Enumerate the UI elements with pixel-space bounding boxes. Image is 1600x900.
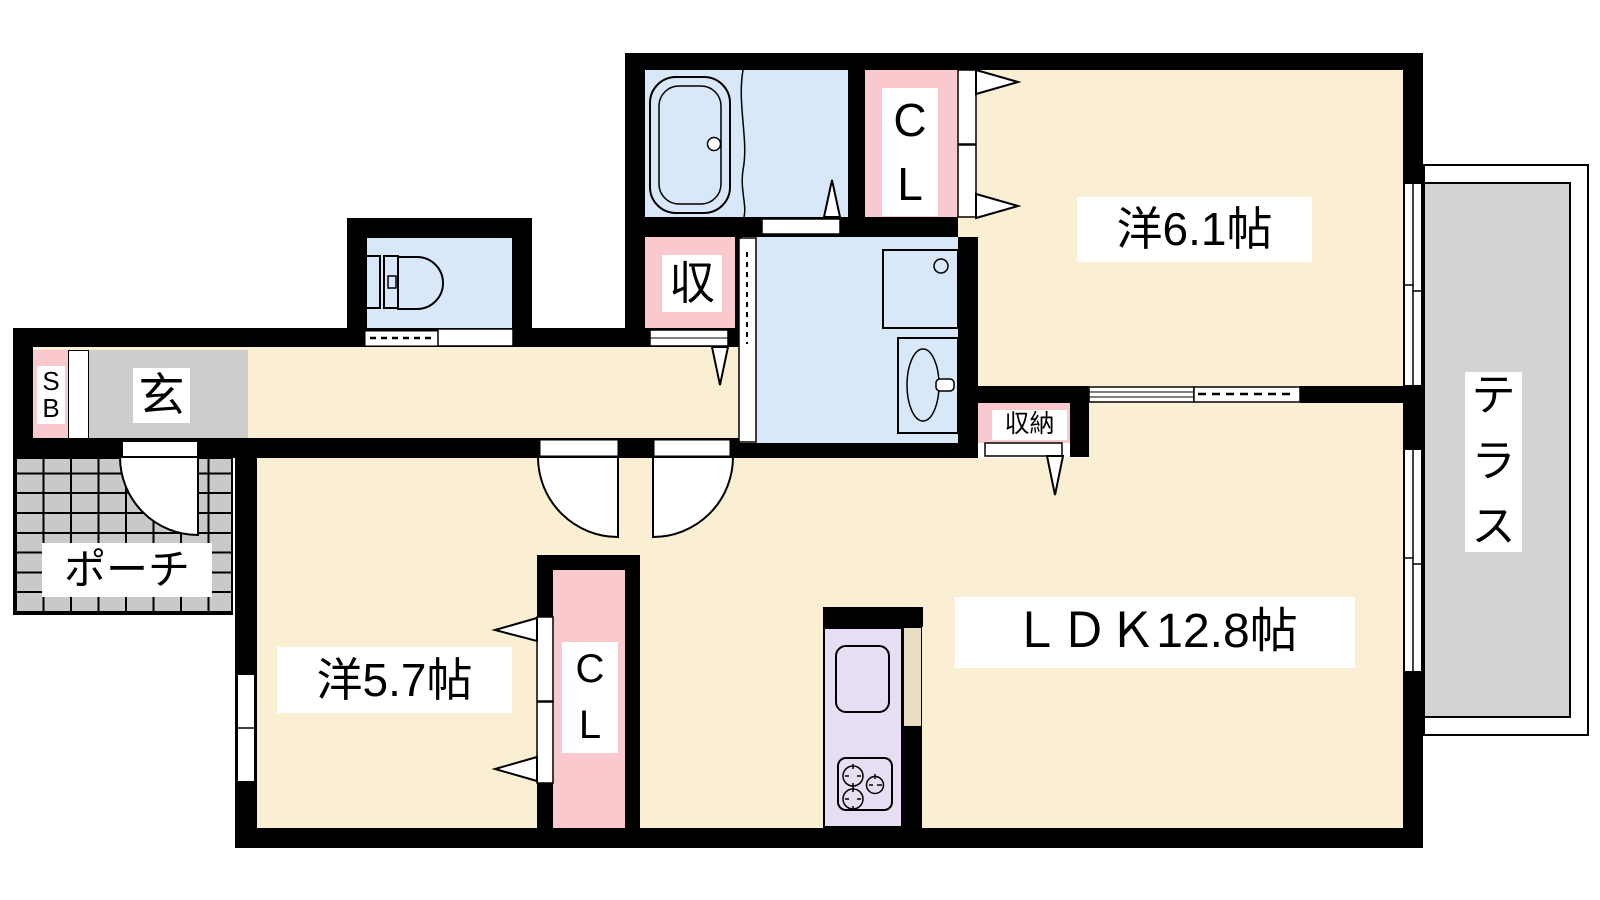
window-ldk [1404,449,1422,672]
toilet-sliding-door [365,329,513,346]
label-terrace: テ ラ ス [1465,372,1522,552]
label-hall-storage-text: 収 [669,260,715,307]
label-western-room-61-text: 洋6.1帖 [1117,206,1273,253]
fixtures-overlay [0,0,1600,900]
label-ldk-storage: 収納 [992,410,1067,440]
label-terrace-char2: ラ [1472,440,1516,485]
label-ldk-storage-text: 収納 [1004,412,1054,438]
label-hall-storage: 収 [662,255,722,312]
label-porch: ポーチ [42,543,212,597]
label-closet-main: C L [882,88,938,216]
label-western-room-57-text: 洋5.7帖 [317,657,473,704]
label-closet-57-char2: L [579,705,601,746]
label-porch-text: ポーチ [64,549,190,592]
window-western61 [1404,183,1422,386]
label-entrance-text: 玄 [139,372,185,419]
label-western-room-61: 洋6.1帖 [1077,197,1312,262]
label-ldk: ＬＤＫ12.8帖 [955,597,1355,668]
label-closet-57: C L [562,642,618,753]
stove [838,758,892,810]
label-entrance: 玄 [133,368,190,423]
toilet [366,256,443,309]
door-swing-ldk [653,457,733,537]
floor-plan: 洋6.1帖 洋5.7帖 ＬＤＫ12.8帖 テ ラ ス 玄 ポーチ S B 収 収… [0,0,1600,900]
bathroom-door [762,180,840,234]
bathtub [650,77,730,213]
label-shoe-box-char1: S [42,368,59,395]
label-closet-main-char2: L [897,161,923,208]
vanity-sink [898,338,958,433]
closet-main-doors [958,70,1018,218]
label-terrace-char1: テ [1472,374,1516,419]
washing-machine-pan [883,250,958,328]
sliding-partition [1194,387,1300,402]
label-closet-main-char1: C [893,97,926,144]
bath-partition-curve [741,70,744,217]
window-partition [1089,387,1194,402]
label-shoe-box: S B [37,366,65,424]
entrance-door-swing [120,457,198,535]
label-western-room-57: 洋5.7帖 [277,647,512,713]
kitchen-sink [836,646,889,712]
entrance-door-leaf [122,441,198,457]
hall-storage-door [650,330,728,385]
label-ldk-text: ＬＤＫ12.8帖 [1012,608,1297,657]
washroom-sliding-door [739,238,756,442]
label-terrace-char3: ス [1472,505,1516,550]
window-western57 [237,674,255,782]
door-swing-western57 [538,457,618,537]
door-frame-east [654,440,730,456]
door-frame-west [540,440,618,456]
ldk-storage-door [985,443,1063,495]
label-shoe-box-char2: B [42,395,59,422]
label-closet-57-char1: C [576,649,605,690]
